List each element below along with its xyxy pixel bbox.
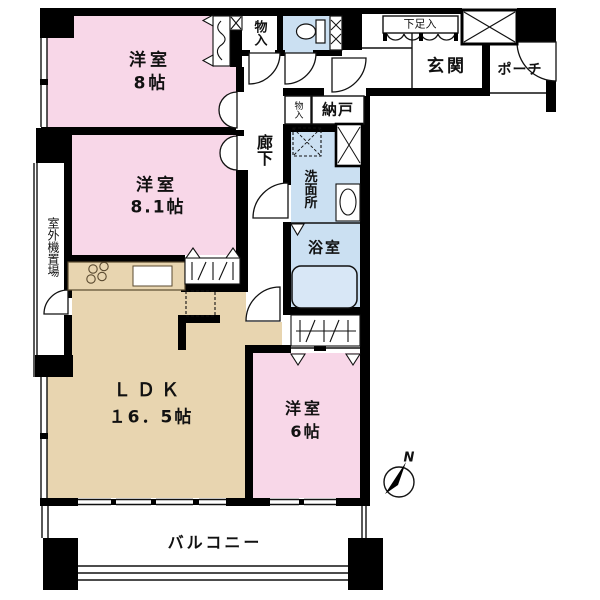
bedroom8-label: 洋室: [129, 53, 171, 70]
bedroom8-closet: [213, 16, 230, 66]
balcony-right-edge: [362, 505, 366, 538]
toilet-bowl: [297, 24, 316, 39]
storeroom-label: 納戸: [322, 103, 354, 118]
closet-top-label: 物入: [253, 20, 266, 46]
bedroom6-label: 洋室: [285, 401, 323, 417]
pillar-west: [36, 128, 72, 163]
closet-small-label: 物入: [293, 101, 302, 119]
bedroom8-size: 8帖: [134, 76, 169, 93]
outdoor-unit-strip-edge: [34, 163, 37, 377]
shoe-cabinet-label: 下足入: [404, 19, 437, 30]
washroom-label: 洗面所: [303, 170, 316, 209]
balcony-pillar-se: [348, 538, 383, 590]
bathroom-label: 浴室: [308, 241, 342, 256]
outdoor-unit-label: 室外機置場: [47, 217, 59, 277]
bedroom6-size: 6帖: [290, 424, 321, 440]
vanity-sink-bowl: [340, 189, 356, 215]
washroom-door: [253, 183, 288, 218]
compass: [384, 462, 414, 497]
ldk-label: ＬＤＫ: [113, 382, 185, 400]
toilet-door: [285, 53, 316, 84]
ldk-size: １6．5帖: [109, 410, 194, 427]
pillar-west-lower: [35, 355, 73, 377]
porch-label: ポーチ: [498, 63, 543, 77]
balcony-label: バルコニー: [168, 535, 263, 551]
corridor-label: 廊下: [255, 134, 271, 166]
toilet-tank: [316, 20, 325, 43]
bedroom-8-floor: [47, 16, 236, 127]
ldk-door: [246, 287, 280, 321]
bedroom81-label: 洋室: [136, 178, 178, 195]
closet-top-door: [249, 53, 280, 84]
compass-n-label: N: [404, 452, 415, 465]
storeroom-door: [332, 58, 366, 92]
kitchen-sink: [133, 266, 172, 286]
balcony-left-edge: [42, 506, 48, 538]
bedroom81-size: 8.1帖: [130, 200, 185, 217]
floor-plan-drawing: [0, 0, 600, 600]
entrance-label: 玄関: [427, 59, 467, 76]
balcony-pillar-sw: [43, 538, 78, 590]
floor-plan: { "title": "マンション間取り図", "colors": { "wal…: [0, 0, 600, 600]
balcony-railing: [78, 566, 348, 580]
bathtub: [292, 266, 357, 308]
outdoor-unit-door: [44, 290, 68, 314]
corner-pillar-nw: [40, 8, 74, 38]
